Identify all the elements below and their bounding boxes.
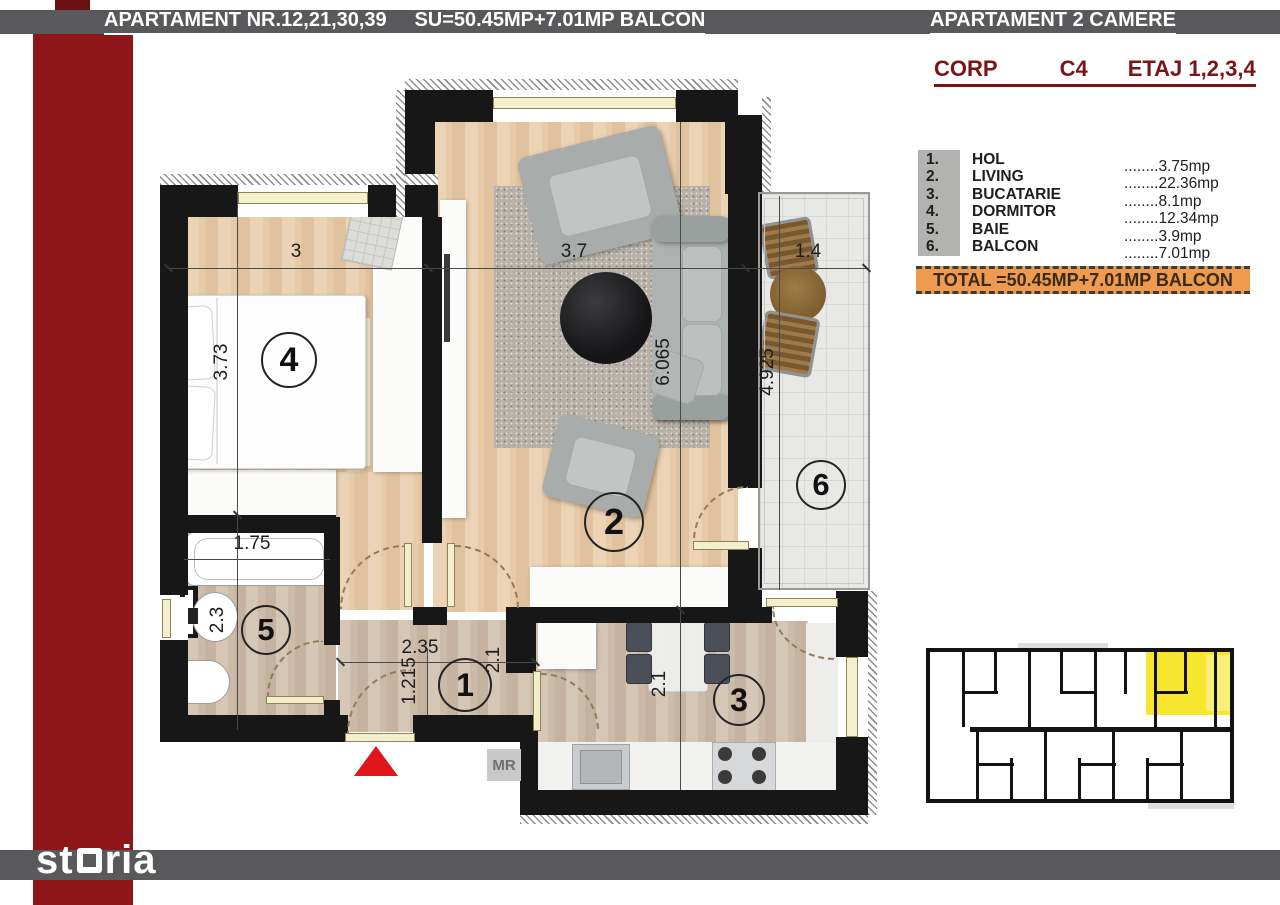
wall-hatch xyxy=(405,79,738,90)
legend-room-area: ........12.34mp xyxy=(1124,210,1219,227)
wall-segment xyxy=(324,517,340,645)
logo-text: ria xyxy=(105,838,157,882)
legend-num: 6. xyxy=(926,238,939,255)
key-plan-balcony xyxy=(1148,803,1234,809)
room-number-baie: 5 xyxy=(241,605,291,655)
armchair-cushion xyxy=(564,435,638,499)
dim-label: 4.925 xyxy=(757,348,779,396)
dim-label: 1.75 xyxy=(234,533,271,555)
bottom-bar xyxy=(0,850,1280,880)
dining-chair xyxy=(626,622,652,652)
armchair-cushion xyxy=(547,154,654,239)
dimension-line xyxy=(680,122,681,790)
legend-room-area: ........22.36mp xyxy=(1124,175,1219,192)
dim-label: 1.4 xyxy=(795,241,821,263)
wall-segment xyxy=(160,640,188,717)
key-plan-wall xyxy=(1230,648,1234,803)
legend-room-area: ........8.1mp xyxy=(1124,193,1219,210)
dim-label: 3.73 xyxy=(211,344,233,381)
bedroom-door xyxy=(404,543,412,607)
dimension-line xyxy=(237,192,238,730)
living-window xyxy=(493,97,676,109)
key-plan-wall xyxy=(926,648,1234,652)
room-number-living: 2 xyxy=(584,492,644,552)
total-area-bar: TOTAL =50.45MP+7.01MP BALCON xyxy=(916,266,1250,294)
brand-stripe xyxy=(33,32,133,905)
apartment-title-text: APARTAMENT NR.12,21,30,39 SU=50.45MP+7.0… xyxy=(104,9,705,35)
key-plan-wall xyxy=(1154,652,1157,727)
key-plan-wall xyxy=(926,648,930,803)
dim-label: 3 xyxy=(291,241,302,263)
legend-room-area: ........7.01mp xyxy=(1124,245,1219,262)
apartment-title: APARTAMENT NR.12,21,30,39 SU=50.45MP+7.0… xyxy=(104,10,705,34)
etaj-label: ETAJ 1,2,3,4 xyxy=(1128,56,1256,82)
wall-segment xyxy=(160,185,238,217)
wall-segment xyxy=(413,715,536,742)
wall-segment xyxy=(520,790,868,815)
key-plan-wall xyxy=(994,652,997,694)
living-sideboard xyxy=(530,567,732,608)
living-closet xyxy=(440,200,466,518)
legend-num: 3. xyxy=(926,186,939,203)
wall-segment xyxy=(728,548,762,610)
kitchen-door xyxy=(533,671,541,731)
wall-segment xyxy=(836,737,868,815)
legend-room-area: ........3.75mp xyxy=(1124,158,1219,175)
wall-hatch xyxy=(762,97,771,192)
key-plan-wall xyxy=(1028,652,1031,727)
wall-hatch xyxy=(520,815,868,824)
room-number-hol: 1 xyxy=(438,658,492,712)
wall-segment xyxy=(728,122,762,488)
mr-box: MR xyxy=(487,749,521,781)
entrance-arrow xyxy=(354,746,398,776)
living-door xyxy=(447,543,455,607)
legend-room-name: HOL xyxy=(972,151,1061,168)
wall-segment xyxy=(506,607,772,623)
storia-logo: stria xyxy=(36,838,157,883)
toilet xyxy=(184,660,230,704)
key-plan-wall xyxy=(962,652,965,727)
key-plan-wall xyxy=(1060,652,1063,694)
corp-etaj-line: CORP C4 ETAJ 1,2,3,4 xyxy=(934,56,1256,87)
burner xyxy=(718,747,732,761)
apartment-type-title: APARTAMENT 2 CAMERE xyxy=(930,10,1176,34)
dimension-line xyxy=(168,268,868,269)
dim-label: 2.3 xyxy=(207,607,229,633)
key-plan-wall xyxy=(962,691,998,694)
key-plan-wall xyxy=(1094,652,1097,727)
building-key-plan xyxy=(918,643,1248,823)
legend-numbers: 1. 2. 3. 4. 5. 6. xyxy=(926,151,939,255)
key-plan-wall xyxy=(1078,763,1116,766)
key-plan-corridor xyxy=(970,727,1234,732)
corp-value: C4 xyxy=(1060,56,1088,82)
dim-label: 6.065 xyxy=(653,338,675,386)
key-plan-wall xyxy=(1044,732,1047,799)
key-plan-wall xyxy=(976,763,1014,766)
legend-values: ........3.75mp ........22.36mp ........8… xyxy=(1124,158,1219,262)
wall-segment xyxy=(160,715,324,742)
key-plan-wall xyxy=(1214,652,1217,727)
legend-num: 5. xyxy=(926,221,939,238)
legend-room-name: BAIE xyxy=(972,221,1061,238)
legend-num: 2. xyxy=(926,168,939,185)
room-number-balcon: 6 xyxy=(796,460,846,510)
living-balcony-door xyxy=(693,541,749,550)
bathroom-door xyxy=(266,696,324,704)
sofa-armrest xyxy=(652,216,730,242)
logo-square-o-icon xyxy=(77,848,102,873)
room-number-bucatarie: 3 xyxy=(713,674,765,726)
key-plan-wall xyxy=(1124,652,1127,694)
corp-label: CORP xyxy=(934,56,998,82)
legend-room-name: LIVING xyxy=(972,168,1061,185)
logo-text: st xyxy=(36,838,74,882)
sofa-cushion xyxy=(682,246,722,322)
floorplan-page: APARTAMENT NR.12,21,30,39 SU=50.45MP+7.0… xyxy=(0,0,1280,905)
dining-chair xyxy=(704,622,730,652)
legend-num: 4. xyxy=(926,203,939,220)
wall-segment xyxy=(160,217,188,595)
bedroom-closet xyxy=(186,470,336,517)
dim-label: 2.1 xyxy=(649,671,671,697)
legend-room-name: DORMITOR xyxy=(972,203,1061,220)
kitchen-sink-basin xyxy=(580,750,622,784)
bathroom-window xyxy=(162,599,171,638)
key-plan-wall xyxy=(1184,652,1187,694)
total-area-text: TOTAL =50.45MP+7.01MP BALCON xyxy=(933,270,1233,291)
legend-names: HOL LIVING BUCATARIE DORMITOR BAIE BALCO… xyxy=(972,151,1061,255)
wall-hatch xyxy=(868,591,877,815)
dim-label: 3.7 xyxy=(561,241,587,263)
burner xyxy=(718,770,732,784)
wall-hatch xyxy=(396,90,405,217)
kitchen-cabinet xyxy=(538,623,596,669)
burner xyxy=(752,770,766,784)
key-plan-wall xyxy=(1154,691,1188,694)
wall-segment xyxy=(160,515,336,533)
apartment-type-text: APARTAMENT 2 CAMERE xyxy=(930,9,1176,35)
dim-label: 2.35 xyxy=(402,637,439,659)
room-number-dormitor: 4 xyxy=(261,332,317,388)
wall-segment xyxy=(413,607,447,625)
kitchen-window xyxy=(846,657,858,737)
legend-room-name: BALCON xyxy=(972,238,1061,255)
entrance-door xyxy=(345,733,415,742)
dimension-line xyxy=(779,196,780,590)
dim-label: 1.215 xyxy=(399,657,421,705)
key-plan-wall xyxy=(1146,763,1184,766)
dimension-line xyxy=(184,559,330,560)
key-plan-wall xyxy=(1060,691,1096,694)
legend-num: 1. xyxy=(926,151,939,168)
bedroom-window xyxy=(238,192,368,204)
dimension-line xyxy=(340,662,536,663)
kitchen-balcony-door xyxy=(766,598,838,607)
legend-room-name: BUCATARIE xyxy=(972,186,1061,203)
coffee-table xyxy=(560,272,652,364)
burner xyxy=(752,747,766,761)
legend-number-column xyxy=(918,150,960,256)
wall-segment xyxy=(435,90,493,122)
wall-segment xyxy=(405,90,435,217)
wall-segment xyxy=(836,591,868,657)
legend-room-area: ........3.9mp xyxy=(1124,228,1219,245)
